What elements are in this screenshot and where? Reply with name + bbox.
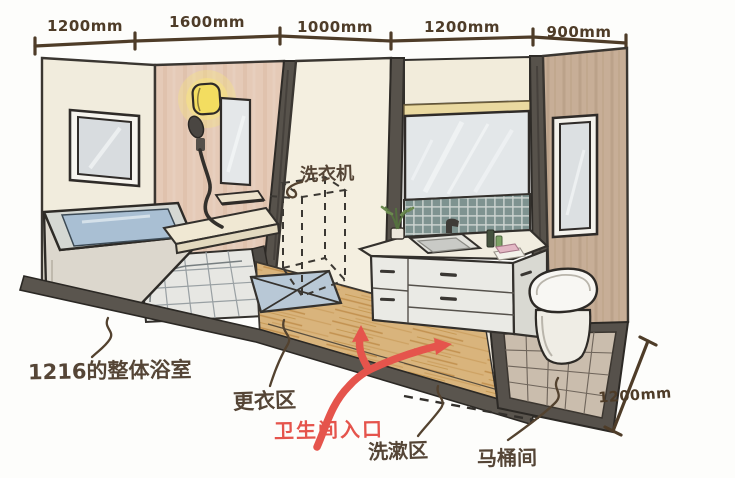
- bathroom-layout-sketch: 1200mm 1600mm 1000mm 1200mm 900mm 1200mm…: [0, 0, 735, 478]
- sketch-canvas: [0, 0, 735, 478]
- vanity-mirror: [405, 111, 529, 200]
- top-dimension-line: [35, 28, 626, 54]
- leader-unit-bath: [92, 318, 111, 357]
- left-window: [70, 110, 139, 186]
- vanity-wall: [404, 57, 530, 238]
- toilet-window: [553, 115, 597, 237]
- shower-mirror: [221, 98, 250, 185]
- vanity-front: [371, 256, 514, 334]
